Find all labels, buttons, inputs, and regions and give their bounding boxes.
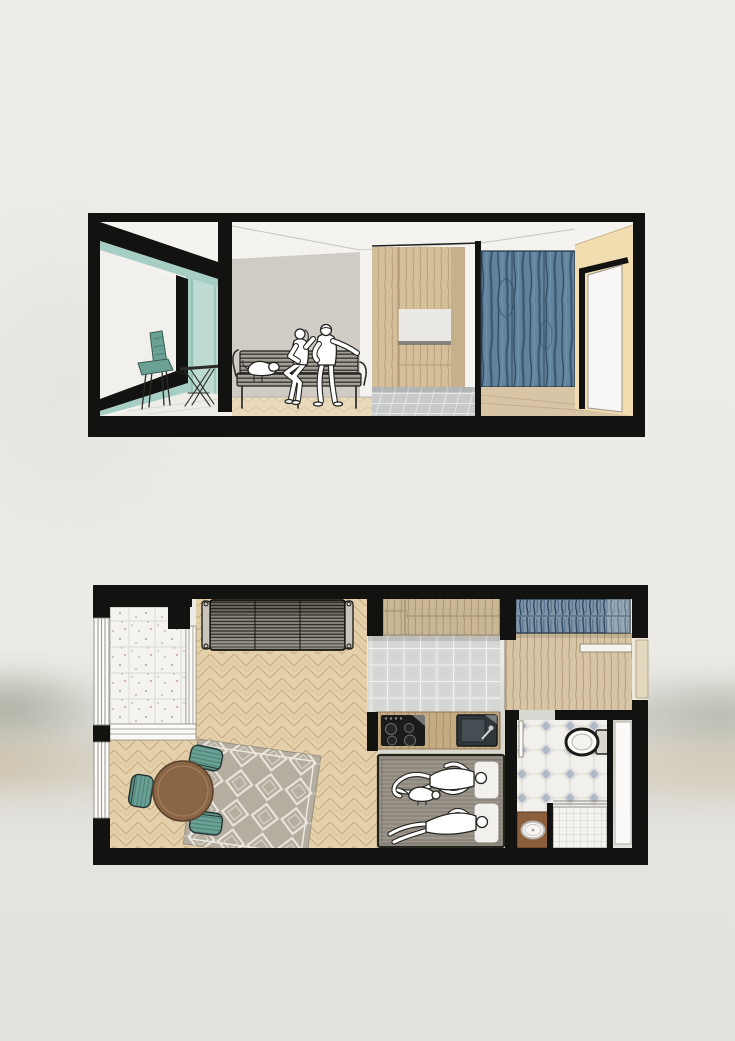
- floor-plan-svg: [90, 582, 650, 868]
- illustration-canvas: [0, 0, 735, 1041]
- washbasin: [517, 812, 549, 848]
- round-dining-table: [153, 761, 213, 821]
- wall-stub-shower: [547, 803, 553, 848]
- wall-bathroom-left: [505, 710, 517, 848]
- wall-bathroom-top: [555, 710, 648, 720]
- woman-head: [295, 329, 305, 339]
- double-bed: [378, 755, 504, 847]
- teal-chair-west: [128, 773, 155, 808]
- wall-stub-kitchen-left: [367, 590, 383, 636]
- wall-bottom: [93, 848, 648, 865]
- wall-stub-stove: [367, 712, 378, 751]
- kitchen-floor: [368, 635, 500, 712]
- wall-stub-kitchen-right: [500, 592, 516, 640]
- service-shaft: [615, 722, 631, 844]
- left-windows: [94, 618, 109, 818]
- wardrobe-plan: [515, 599, 630, 633]
- entry-section: [575, 225, 633, 416]
- kitchen-counter: [377, 712, 500, 749]
- blue-plywood-wardrobe: [481, 251, 575, 387]
- sofa-arm-left: [202, 601, 210, 649]
- window-frame-right-edge: [176, 275, 188, 375]
- wall-right-lower: [632, 700, 648, 848]
- kitchen-backsplash: [398, 309, 451, 341]
- open-white-door: [588, 265, 622, 412]
- cooktop: [381, 715, 425, 746]
- kitchen-counter-edge: [398, 341, 451, 345]
- entry-door-leaf: [636, 640, 648, 698]
- toilet: [566, 729, 608, 755]
- man-head: [321, 325, 332, 336]
- wall-right-upper: [632, 585, 648, 638]
- wall-bathroom-right: [607, 720, 613, 848]
- bathroom-door: [519, 721, 523, 757]
- kitchen-sink: [457, 715, 497, 746]
- section-view-svg: [88, 213, 645, 437]
- entry-door: [580, 644, 632, 652]
- window-mullion: [218, 222, 232, 412]
- sofa-arm-right: [345, 601, 353, 649]
- striped-sofa: [202, 600, 353, 650]
- floor-plan-drawing: [90, 582, 650, 868]
- section-view-drawing: [88, 213, 645, 437]
- kitchen-section: [372, 241, 481, 416]
- wall-stub-balcony: [168, 585, 190, 629]
- shower: [553, 801, 607, 848]
- dog-head: [269, 362, 279, 371]
- partition-edge: [475, 241, 481, 416]
- kitchen-cabinets: [383, 597, 500, 635]
